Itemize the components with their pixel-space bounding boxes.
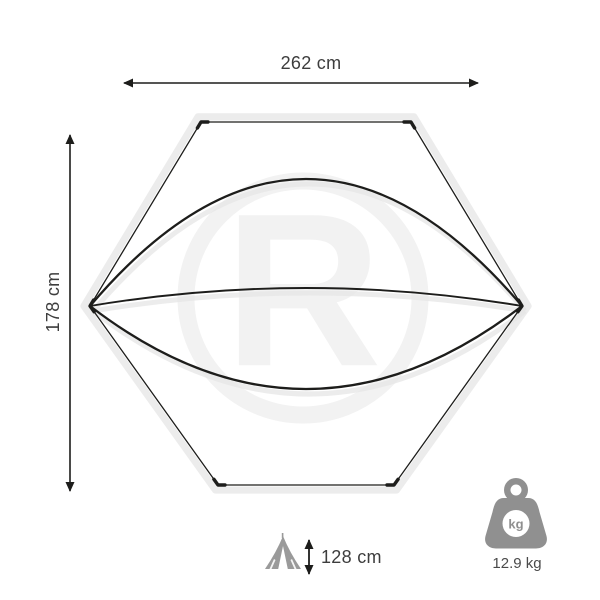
pole-arc-shadows: [93, 184, 525, 394]
kg-unit-badge: kg: [508, 518, 523, 531]
tent-floorplan-svg: [0, 0, 600, 600]
diagram-stage: R: [0, 0, 600, 600]
weight-kettlebell-icon: [485, 478, 547, 549]
depth-dimension-label: 178 cm: [44, 272, 62, 333]
height-dimension-label: 128 cm: [321, 548, 382, 566]
weight-value-label: 12.9 kg: [457, 556, 577, 571]
width-dimension-label: 262 cm: [231, 54, 391, 72]
pole-arc-bottom: [90, 306, 522, 389]
tent-icon: [265, 533, 301, 569]
